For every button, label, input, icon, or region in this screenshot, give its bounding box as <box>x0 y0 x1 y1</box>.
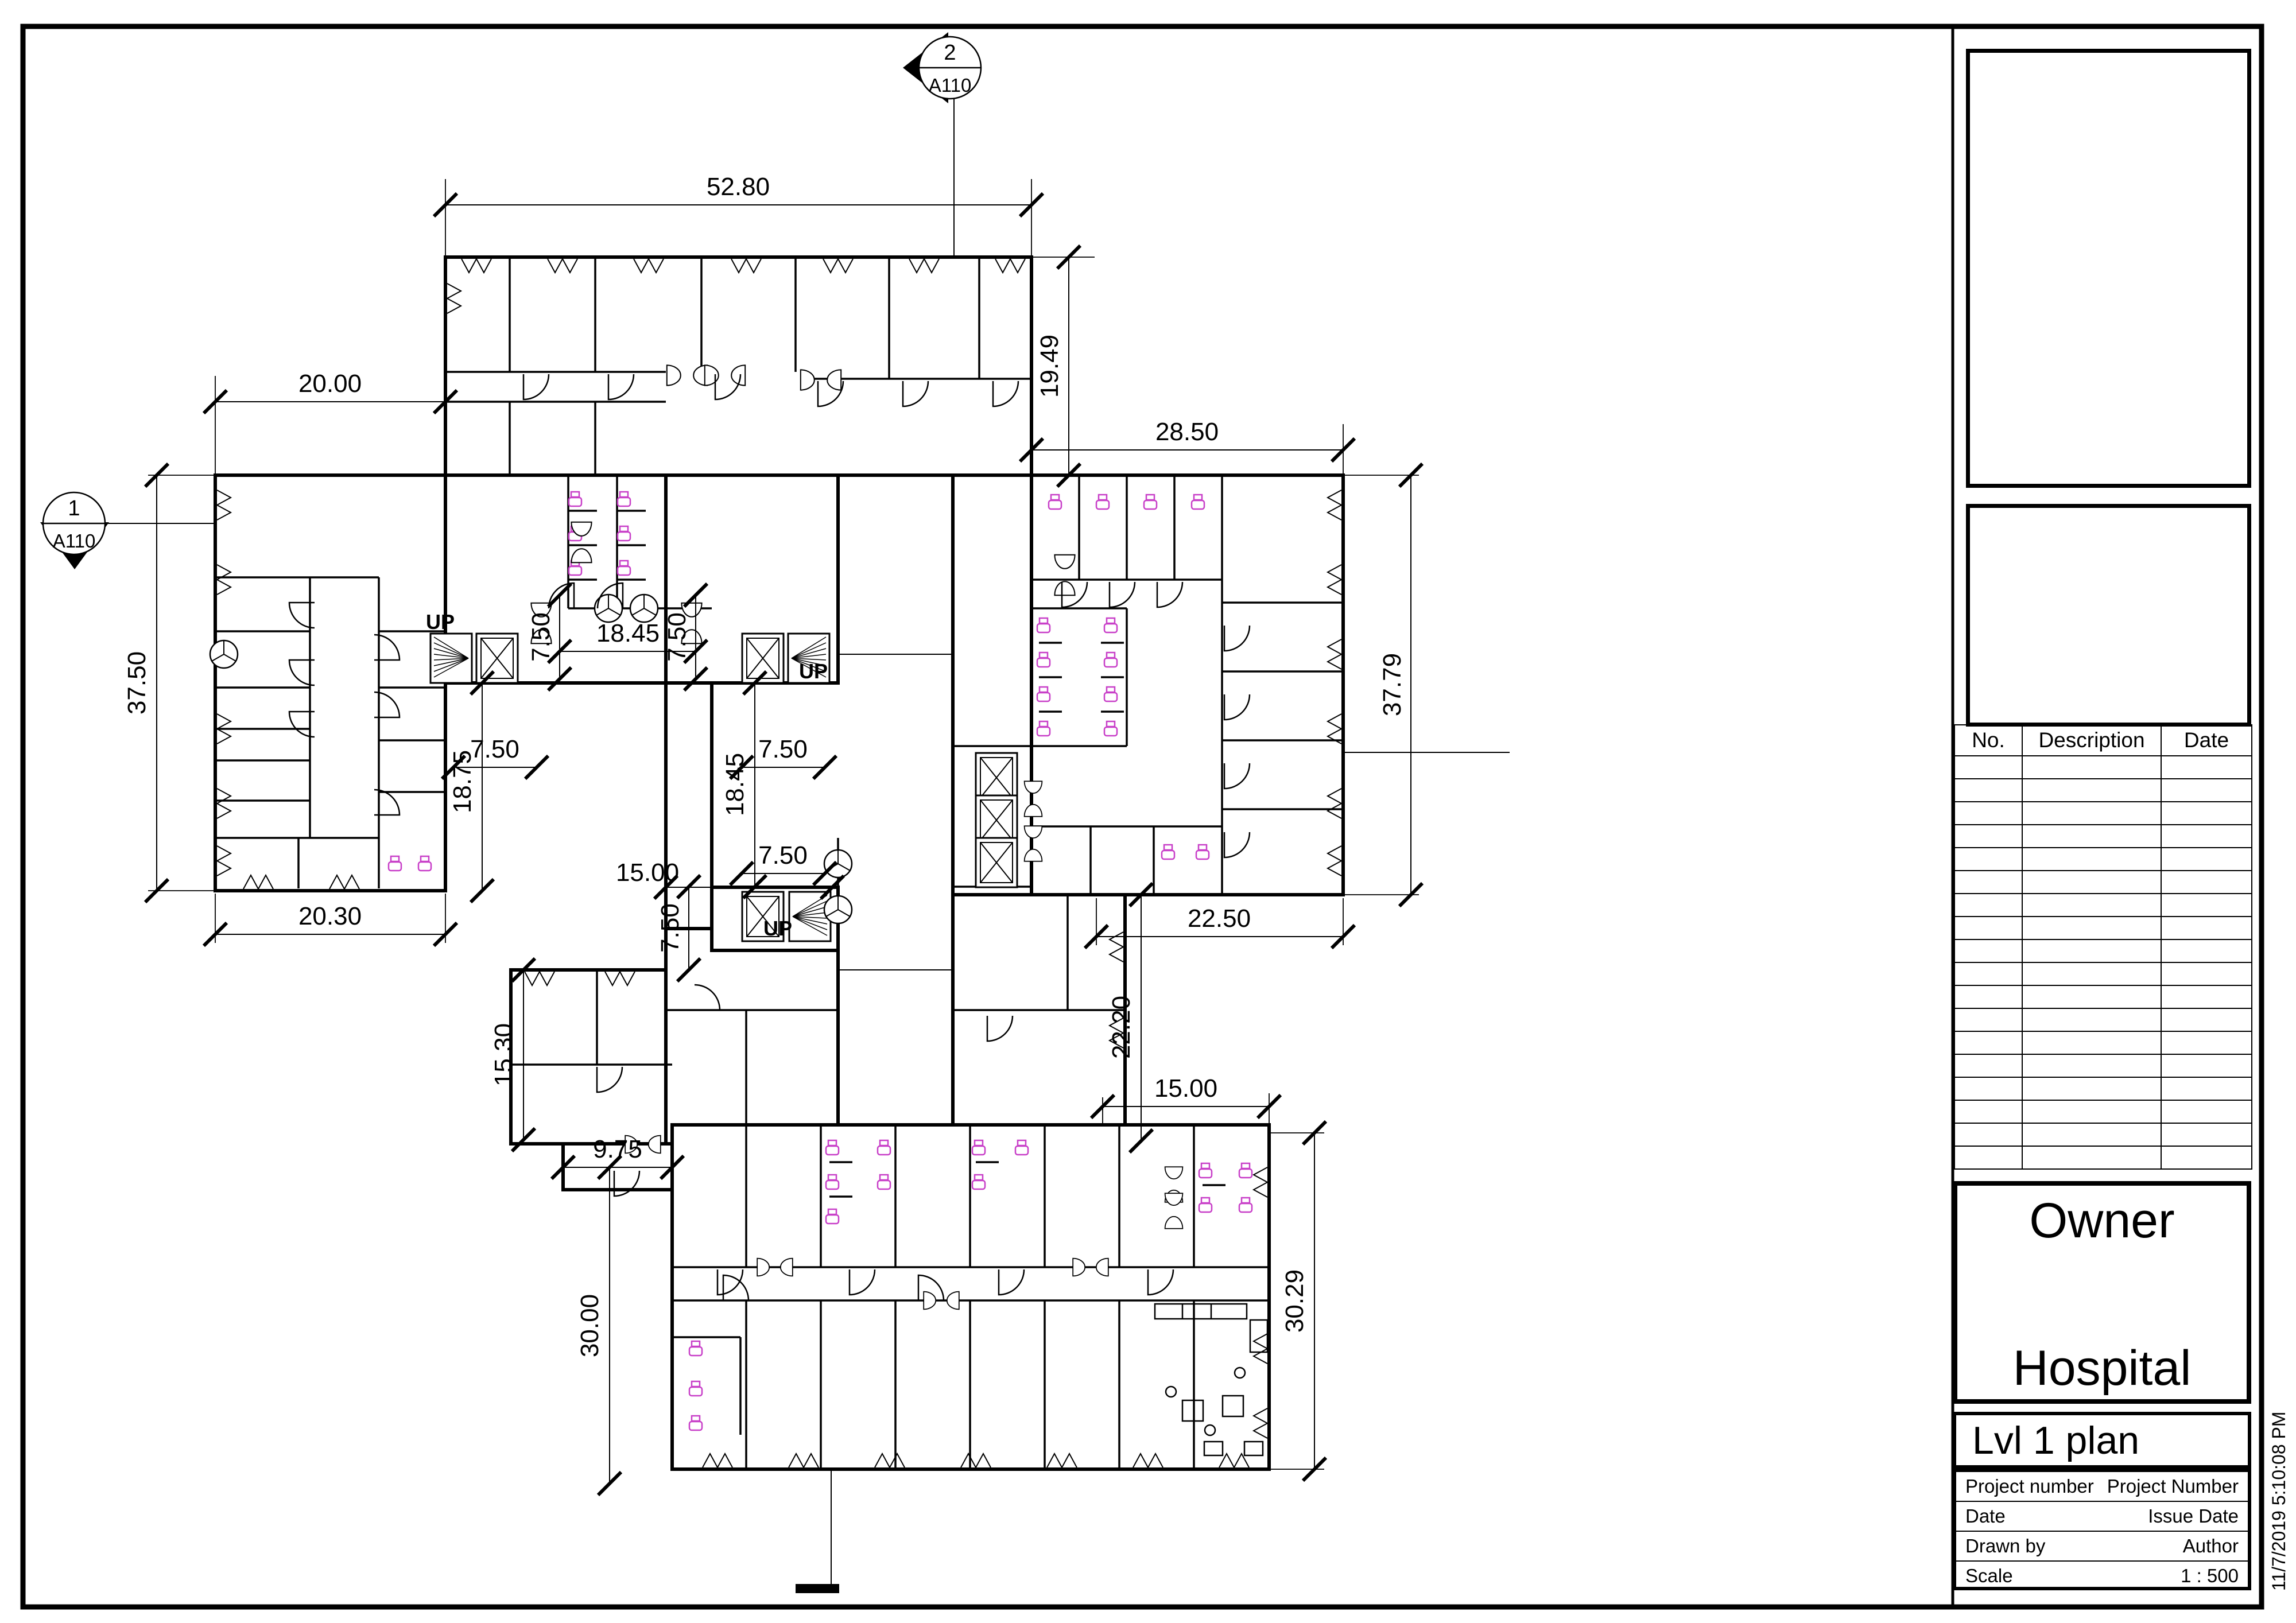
revision-row <box>1954 962 2252 985</box>
project-name: Hospital <box>2013 1341 2192 1396</box>
dimension-label: 7.50 <box>758 735 808 763</box>
dimension-label: 20.30 <box>298 902 362 930</box>
dimension-label: 15.00 <box>616 859 679 887</box>
column-icon <box>824 850 852 877</box>
section-tail-mark <box>796 1584 839 1593</box>
field-label: Drawn by <box>1965 1535 2045 1557</box>
section-marker-1: 1 A110 <box>40 492 109 569</box>
view-title-box: Lvl 1 plan <box>1953 1412 2251 1469</box>
dimension-label: 9.75 <box>593 1135 642 1163</box>
revision-row <box>1954 1123 2252 1146</box>
dimension-label: 19.49 <box>1035 335 1064 398</box>
elevator-icon <box>976 838 1017 887</box>
sheet-canvas: { "colors": {"line": "#000000", "fixture… <box>0 0 2296 1623</box>
floor-plan-drawing: UP UP UP <box>0 0 2296 1623</box>
elevator-bank-right <box>976 753 1017 887</box>
dimension-label: 28.50 <box>1155 418 1219 446</box>
dimension-label: 7.50 <box>656 903 684 953</box>
revision-row <box>1954 1077 2252 1100</box>
dimension-label: 7.50 <box>470 735 519 763</box>
revision-row <box>1954 1100 2252 1123</box>
field-label: Scale <box>1965 1565 2013 1587</box>
logo-box-bottom <box>1966 504 2251 727</box>
project-fields-box: Project number Project Number Date Issue… <box>1953 1469 2251 1590</box>
up-label: UP <box>763 917 792 940</box>
revision-row <box>1954 779 2252 802</box>
section-marker-2: 2 A110 <box>903 32 981 103</box>
revision-row <box>1954 1146 2252 1169</box>
column-icon <box>630 595 658 622</box>
revision-row <box>1954 1008 2252 1031</box>
dimension-label: 18.75 <box>448 750 476 813</box>
section-detail-number: 2 <box>944 41 956 65</box>
column-icon <box>824 896 852 923</box>
owner-project-box: Owner Hospital <box>1953 1181 2251 1404</box>
dimension-label: 7.50 <box>758 841 808 869</box>
dimension-label: 22.20 <box>1107 996 1135 1059</box>
owner-name: Owner <box>2029 1194 2174 1248</box>
print-timestamp: 11/7/2019 5:10:08 PM <box>2268 1338 2290 1591</box>
revision-table: No. Description Date <box>1954 724 2251 1170</box>
revision-row <box>1954 894 2252 917</box>
dimension-label: 15.30 <box>490 1023 518 1086</box>
up-label: UP <box>426 610 455 634</box>
up-label: UP <box>799 659 828 683</box>
dimension-label: 37.50 <box>123 651 151 715</box>
revision-row <box>1954 802 2252 825</box>
dimension-label: 52.80 <box>707 173 770 201</box>
dimension-label: 30.29 <box>1281 1269 1309 1333</box>
revision-row <box>1954 917 2252 939</box>
revision-col-no: No. <box>1954 725 2022 756</box>
section-sheet-number: A110 <box>929 75 972 96</box>
field-label: Date <box>1965 1505 2006 1527</box>
dimension-label: 37.79 <box>1378 653 1406 716</box>
field-value: Author <box>2183 1535 2239 1557</box>
revision-row <box>1954 825 2252 848</box>
field-drawn-by: Drawn by Author <box>1956 1531 2248 1560</box>
dimension-label: 18.45 <box>596 619 660 647</box>
field-value: 1 : 500 <box>2181 1565 2239 1587</box>
section-detail-number: 1 <box>68 496 80 521</box>
field-label: Project number <box>1965 1476 2094 1497</box>
field-scale: Scale 1 : 500 <box>1956 1560 2248 1590</box>
revision-row <box>1954 939 2252 962</box>
section-sheet-number: A110 <box>53 530 96 552</box>
column-icon <box>210 640 238 668</box>
dimension-label: 22.50 <box>1188 904 1251 933</box>
revision-col-date: Date <box>2161 725 2252 756</box>
revision-row <box>1954 985 2252 1008</box>
revision-row <box>1954 871 2252 894</box>
dimension-label: 20.00 <box>298 370 362 398</box>
revision-row <box>1954 756 2252 779</box>
revision-row <box>1954 1054 2252 1077</box>
revision-row <box>1954 848 2252 871</box>
revision-col-description: Description <box>2022 725 2161 756</box>
dimension-label: 18.45 <box>721 753 749 816</box>
stair-icon <box>789 892 831 941</box>
field-value: Issue Date <box>2148 1505 2239 1527</box>
field-date: Date Issue Date <box>1956 1501 2248 1531</box>
dimension-label: 15.00 <box>1154 1074 1217 1102</box>
field-value: Project Number <box>2107 1476 2239 1497</box>
dimension-label: 30.00 <box>576 1294 604 1357</box>
dimension-label: 7.50 <box>663 612 691 662</box>
elevator-icon <box>476 634 518 683</box>
dimension-label: 7.50 <box>527 612 555 662</box>
revision-row <box>1954 1031 2252 1054</box>
view-title: Lvl 1 plan <box>1956 1418 2139 1463</box>
field-project-number: Project number Project Number <box>1956 1472 2248 1501</box>
logo-box-top <box>1966 49 2251 488</box>
